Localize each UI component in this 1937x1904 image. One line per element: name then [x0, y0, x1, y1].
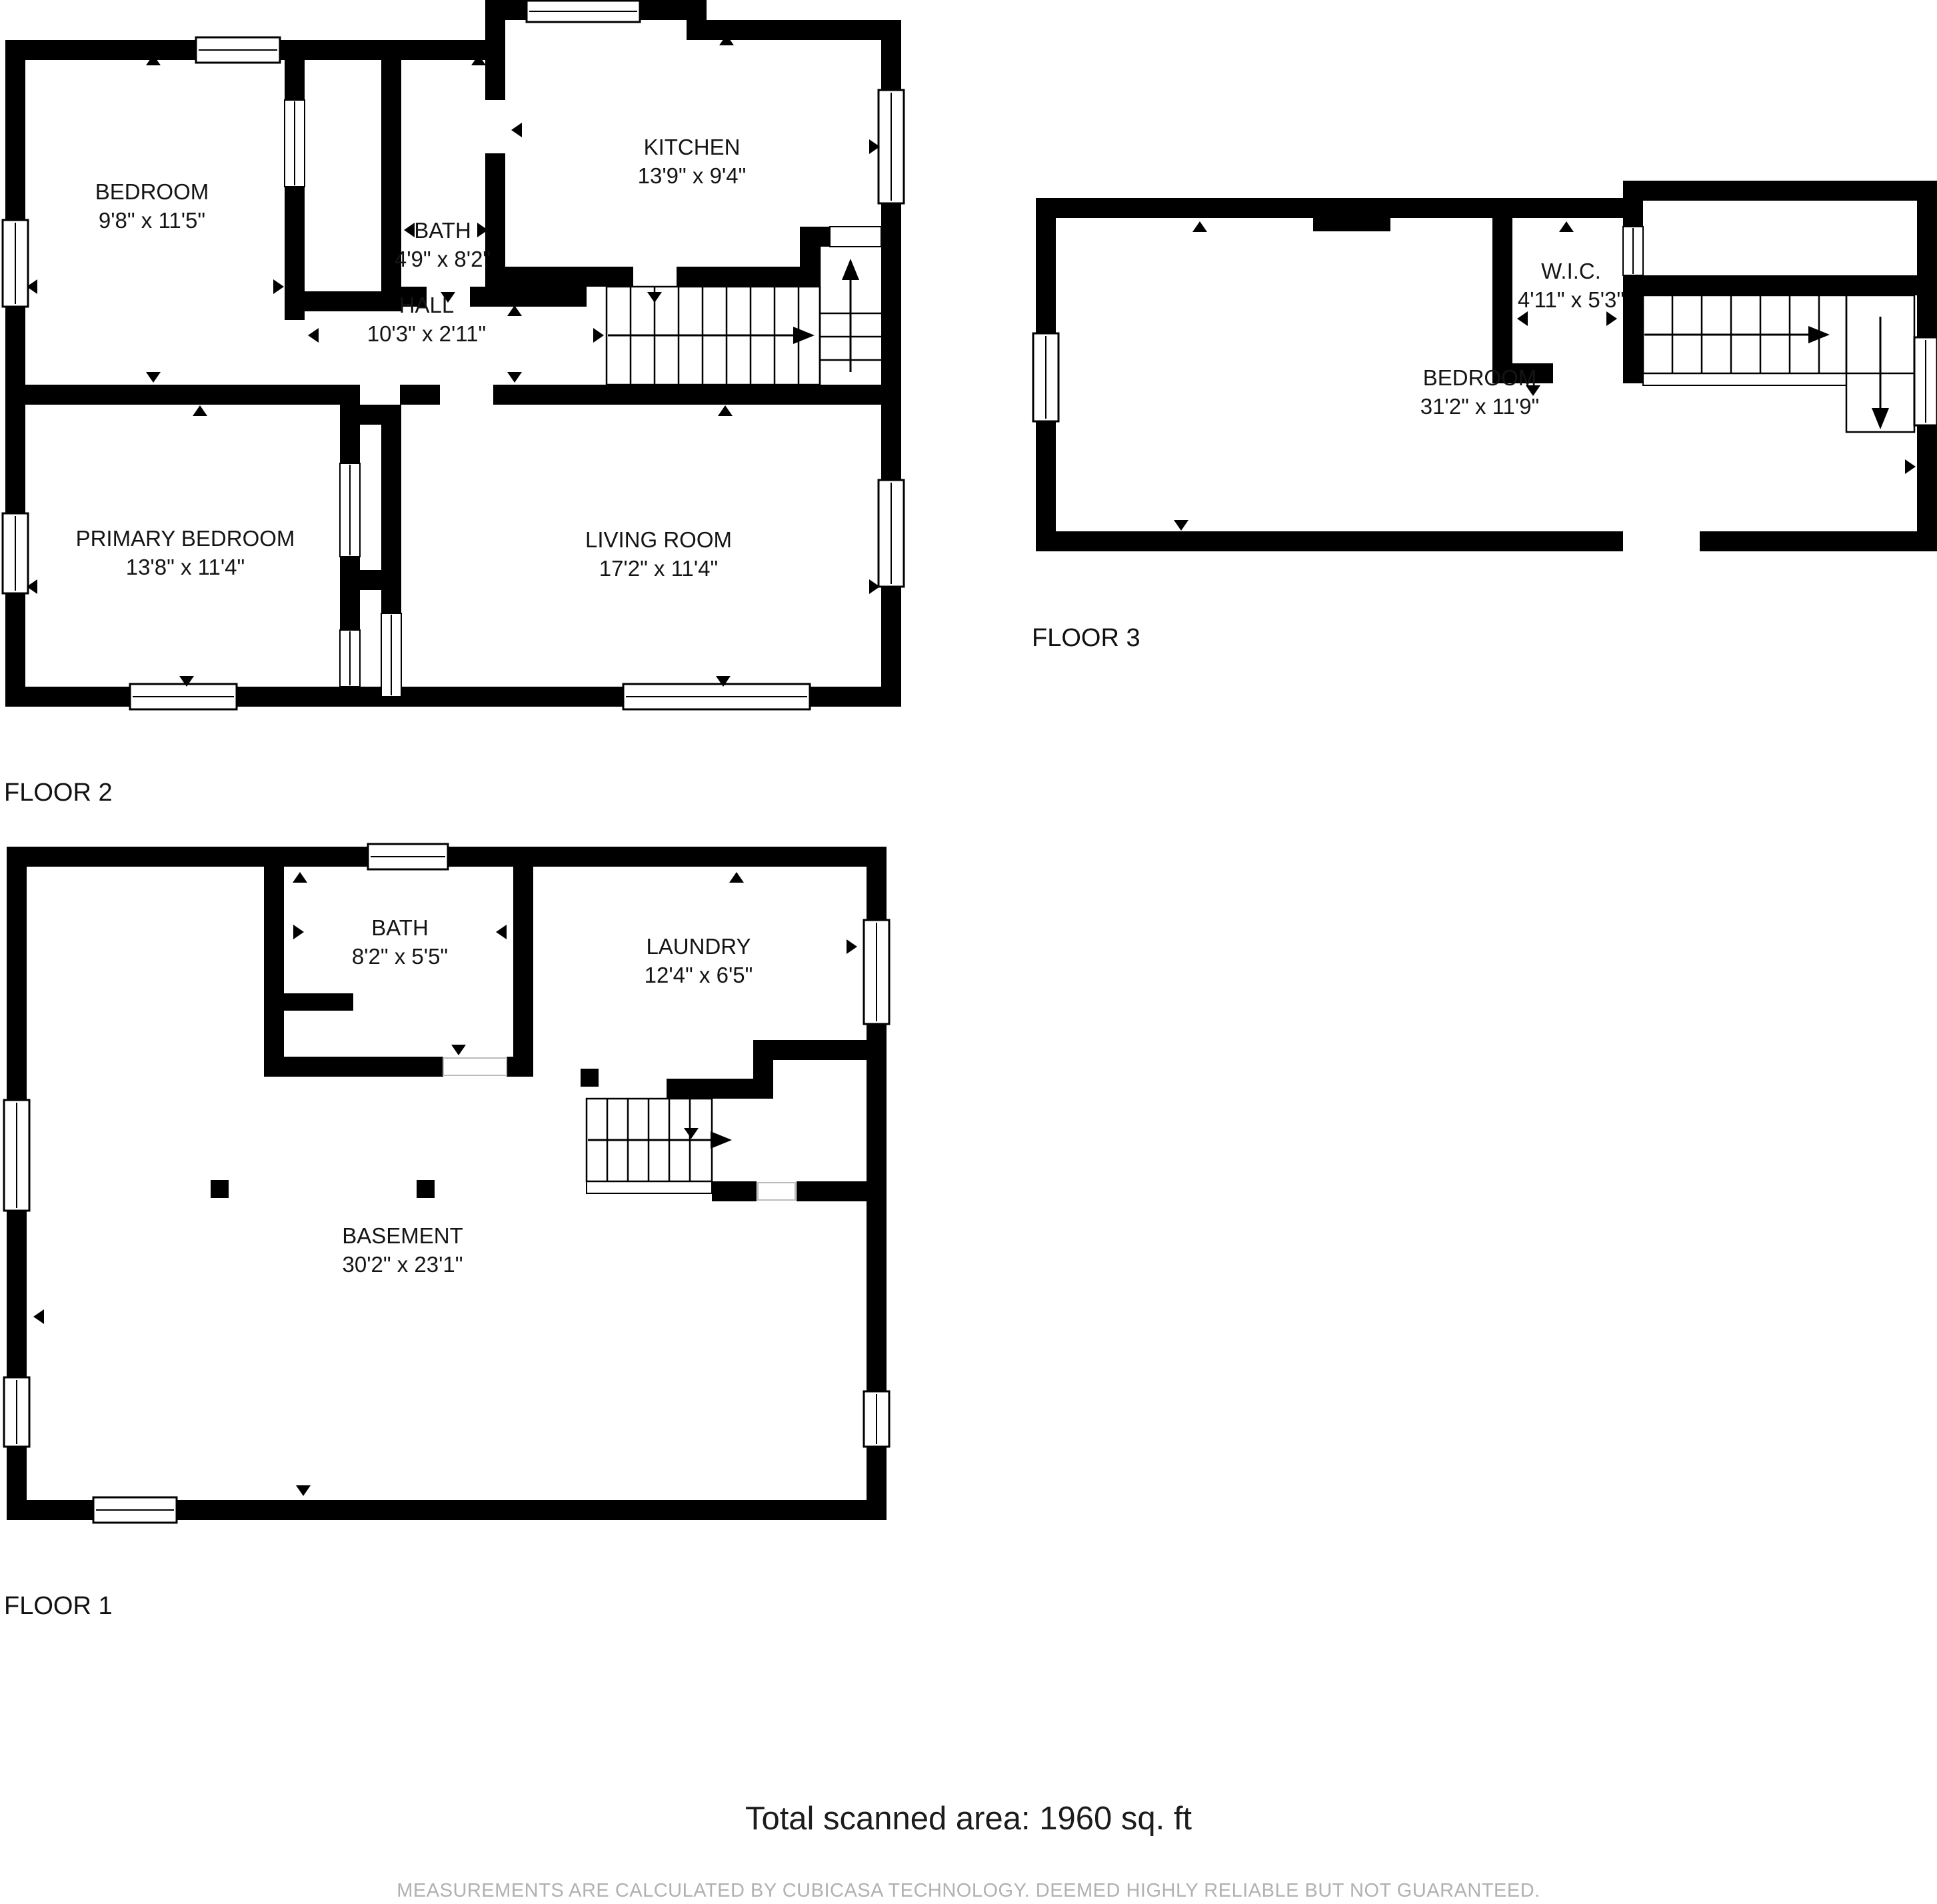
room-name: LIVING ROOM [585, 525, 732, 554]
room-dims: 9'8" x 11'5" [95, 206, 209, 235]
floor2-walls [5, 0, 901, 707]
stair-down-arrow [1872, 408, 1889, 429]
floor2-door-markers [27, 35, 880, 687]
floor3-pocket-doors [1623, 227, 1643, 275]
room-dims: 17'2" x 11'4" [585, 554, 732, 583]
room-name: BEDROOM [95, 177, 209, 206]
room-name: W.I.C. [1518, 257, 1624, 285]
room-label-bath-f1: BATH 8'2" x 5'5" [352, 913, 448, 971]
floorplan-drawing [0, 0, 1937, 1904]
stair-up-arrow [842, 259, 859, 280]
support-post [581, 1069, 599, 1087]
room-name: BATH [395, 216, 491, 245]
room-label-hall: HALL 10'3" x 2'11" [367, 291, 487, 348]
room-dims: 4'11" x 5'3" [1518, 285, 1624, 314]
room-label-laundry: LAUNDRY 12'4" x 6'5" [645, 932, 753, 989]
room-label-primary-bedroom: PRIMARY BEDROOM 13'8" x 11'4" [76, 524, 295, 581]
room-name: BEDROOM [1420, 363, 1540, 392]
room-dims: 4'9" x 8'2" [395, 245, 491, 273]
total-scanned-area: Total scanned area: 1960 sq. ft [745, 1800, 1192, 1837]
room-dims: 8'2" x 5'5" [352, 942, 448, 971]
room-label-bedroom-f3: BEDROOM 31'2" x 11'9" [1420, 363, 1540, 421]
floor2-windows [3, 1, 904, 709]
stair-direction-arrow [711, 1131, 732, 1149]
floor2-title: FLOOR 2 [4, 779, 113, 807]
room-dims: 10'3" x 2'11" [367, 319, 487, 348]
room-name: HALL [367, 291, 487, 319]
room-name: PRIMARY BEDROOM [76, 524, 295, 553]
room-dims: 13'9" x 9'4" [638, 161, 747, 190]
floor1-stairs [587, 1099, 732, 1193]
floor2-plan [3, 0, 904, 709]
room-label-wic: W.I.C. 4'11" x 5'3" [1518, 257, 1624, 314]
floorplan-page: BEDROOM 9'8" x 11'5" BATH 4'9" x 8'2" KI… [0, 0, 1937, 1904]
room-label-bath-f2: BATH 4'9" x 8'2" [395, 216, 491, 273]
room-dims: 30'2" x 23'1" [342, 1250, 463, 1279]
room-name: KITCHEN [638, 133, 747, 161]
support-post [417, 1180, 435, 1198]
room-name: BASEMENT [342, 1221, 463, 1250]
floor3-stairs [1643, 295, 1914, 432]
stair-direction-arrow [793, 327, 815, 344]
room-dims: 31'2" x 11'9" [1420, 392, 1540, 421]
floor1-title: FLOOR 1 [4, 1592, 113, 1621]
room-dims: 13'8" x 11'4" [76, 553, 295, 581]
room-label-bedroom-f2: BEDROOM 9'8" x 11'5" [95, 177, 209, 235]
disclaimer-text: MEASUREMENTS ARE CALCULATED BY CUBICASA … [397, 1880, 1540, 1902]
room-name: LAUNDRY [645, 932, 753, 961]
room-dims: 12'4" x 6'5" [645, 961, 753, 989]
room-label-living-room: LIVING ROOM 17'2" x 11'4" [585, 525, 732, 583]
room-name: BATH [352, 913, 448, 942]
room-label-kitchen: KITCHEN 13'9" x 9'4" [638, 133, 747, 190]
room-label-basement: BASEMENT 30'2" x 23'1" [342, 1221, 463, 1279]
support-post [211, 1180, 229, 1198]
floor3-title: FLOOR 3 [1032, 624, 1140, 653]
